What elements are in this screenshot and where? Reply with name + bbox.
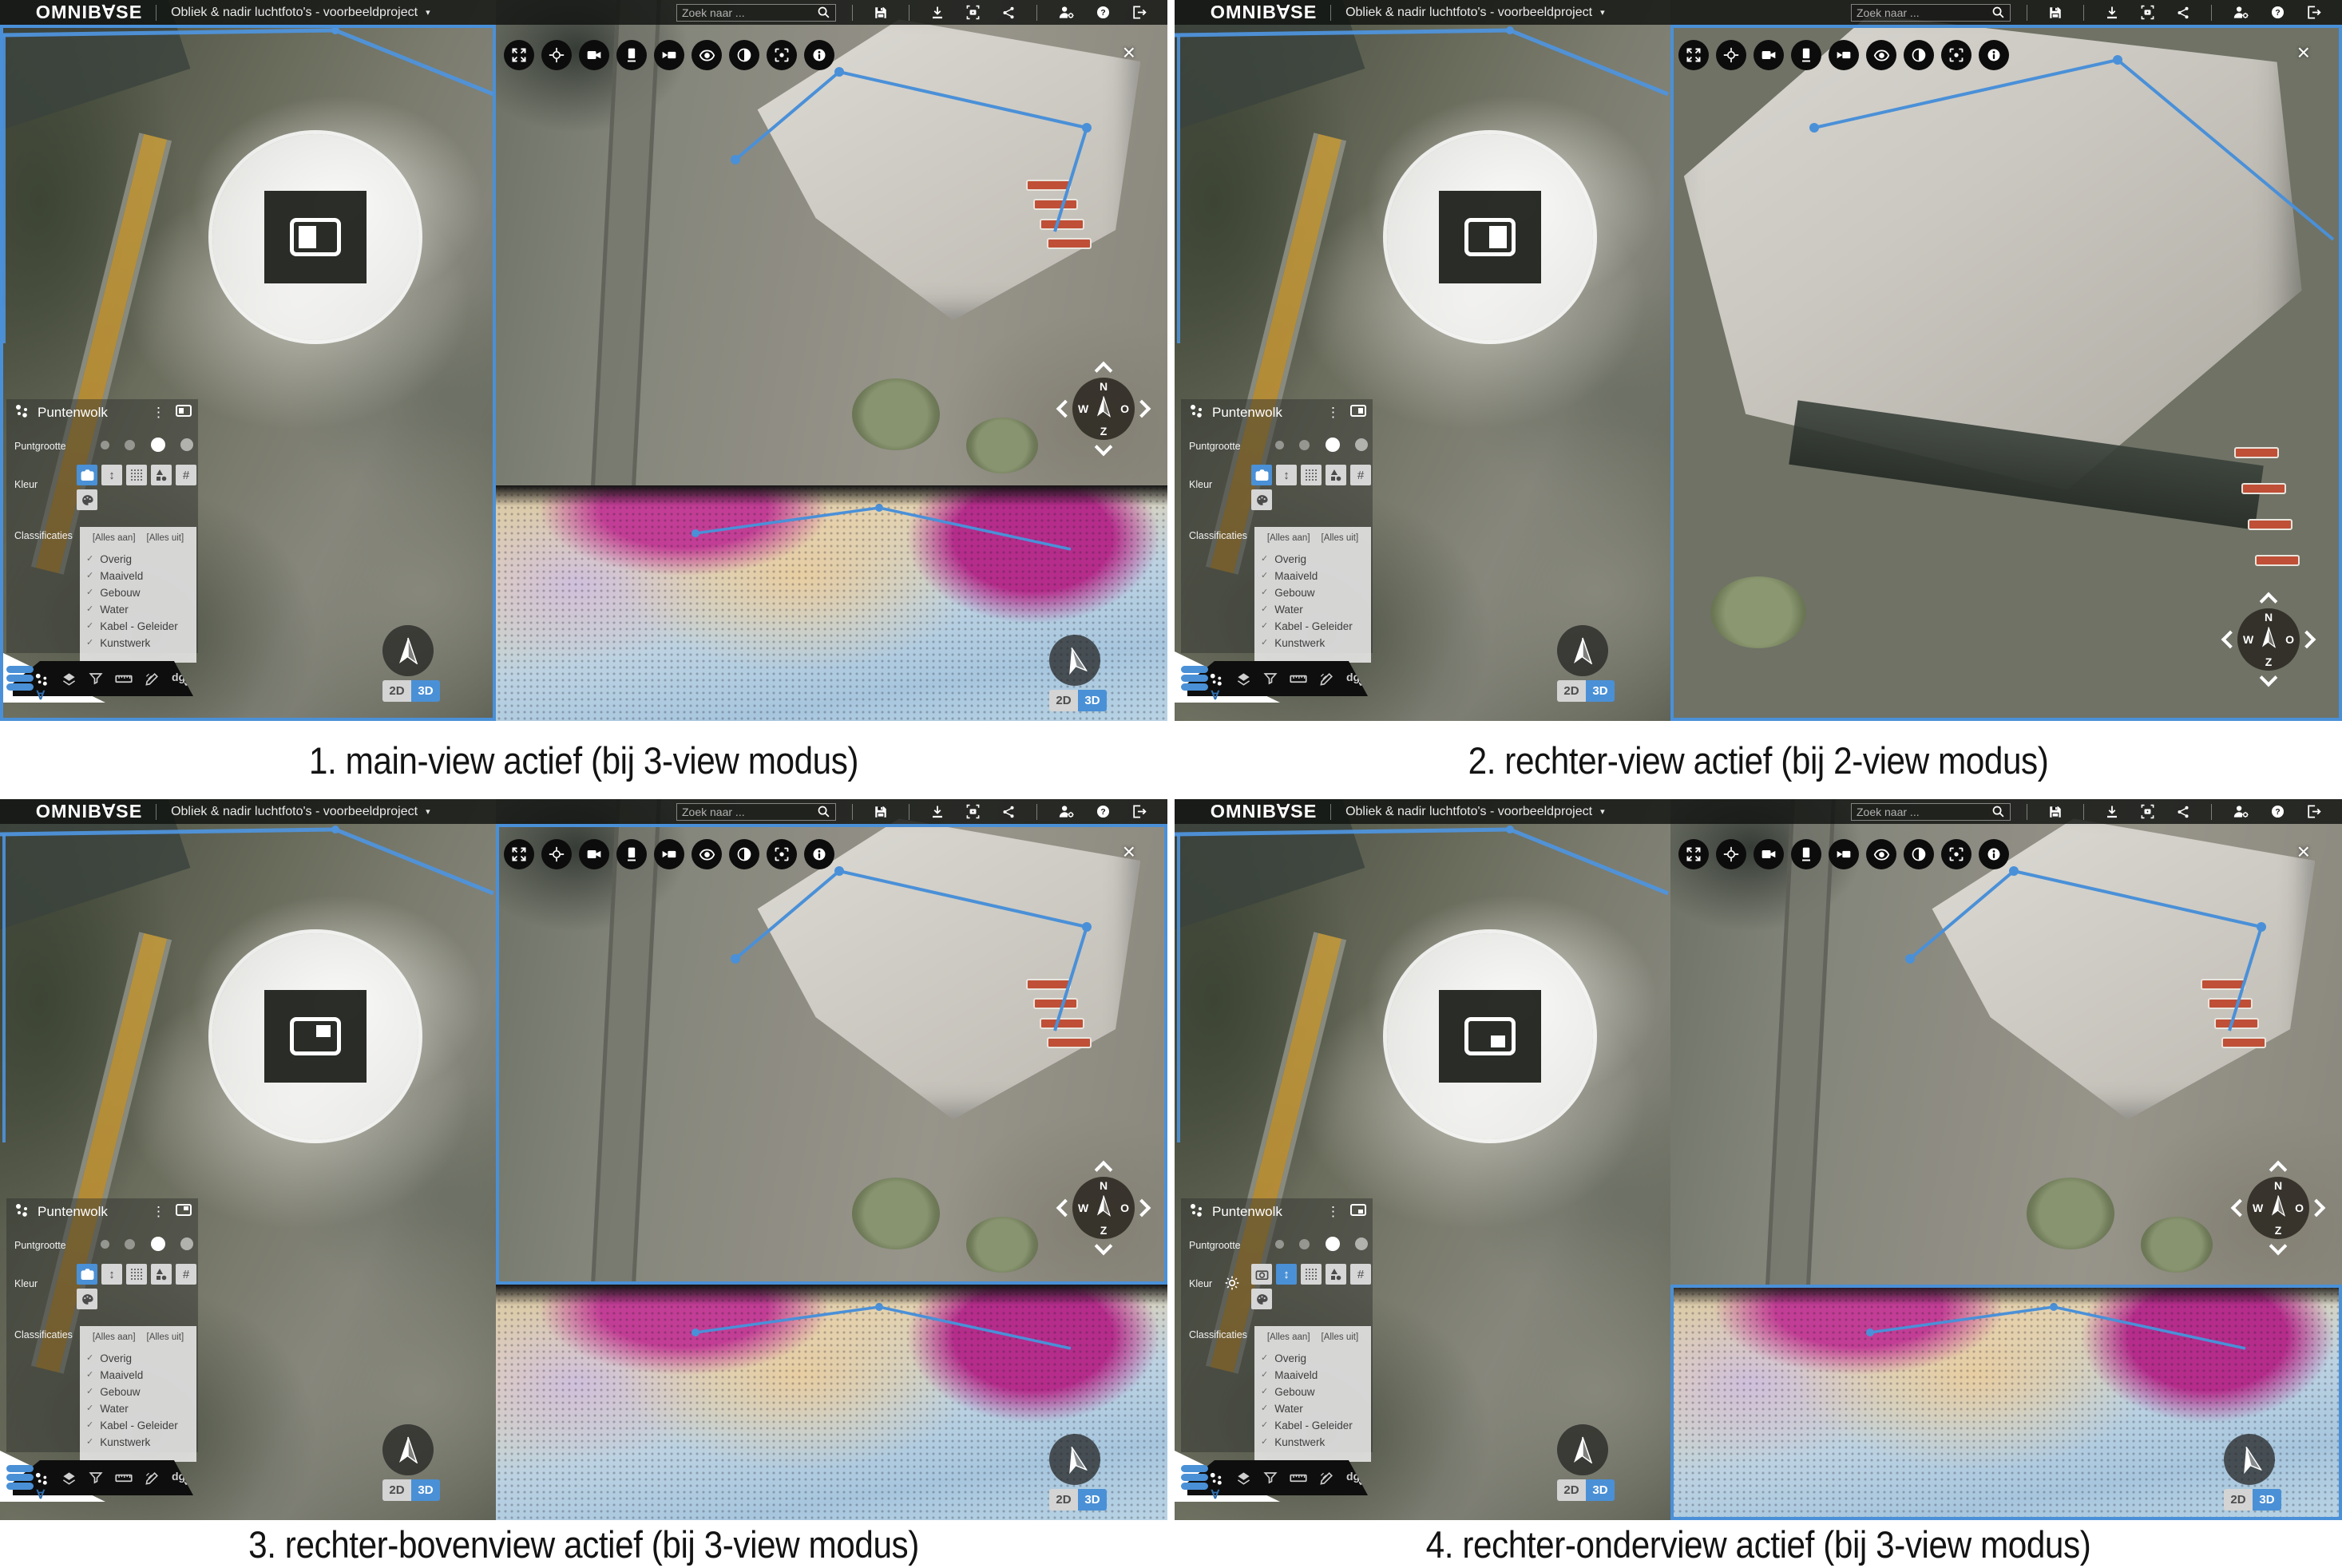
point-size-option-2[interactable] xyxy=(125,1239,135,1249)
download-icon[interactable] xyxy=(930,805,945,819)
database-logo[interactable]: ∀ xyxy=(1181,1465,1218,1499)
right-bottom-view[interactable]: 2D 3D xyxy=(496,485,1167,721)
point-size-option-3-selected[interactable] xyxy=(151,438,165,452)
chevron-down-icon[interactable]: ▾ xyxy=(426,7,430,18)
classification-item[interactable]: ✓Maaiveld xyxy=(86,1367,190,1384)
panel-menu-button[interactable]: ⋮ xyxy=(149,1204,168,1220)
panel-layout-icon[interactable] xyxy=(176,1204,192,1220)
right-bottom-view[interactable]: 2D 3D xyxy=(496,1285,1167,1520)
draw-icon[interactable] xyxy=(145,1471,160,1486)
right-top-view[interactable]: N W O Z xyxy=(496,799,1167,1285)
color-by-grid-button[interactable]: # xyxy=(1350,465,1371,485)
classification-item[interactable]: ✓Maaiveld xyxy=(1261,568,1365,584)
green-shape xyxy=(852,1178,940,1249)
point-size-option-1[interactable] xyxy=(1275,1240,1284,1249)
classification-item[interactable]: ✓Overig xyxy=(1261,1350,1365,1367)
classifications-box: [Alles aan] [Alles uit] ✓Overig ✓Maaivel… xyxy=(80,1326,196,1462)
point-size-label: Puntgrootte xyxy=(14,1240,66,1251)
close-view-button[interactable]: × xyxy=(1123,841,1135,863)
point-size-option-4[interactable] xyxy=(1355,438,1368,451)
road-shape xyxy=(591,0,661,485)
omnibase-logo[interactable]: OMNIB∀SE xyxy=(1211,801,1318,822)
compass-needle xyxy=(1096,1196,1111,1221)
layers-icon[interactable] xyxy=(61,671,77,687)
view-layout-indicator xyxy=(264,990,367,1083)
point-size-row: Puntgrootte xyxy=(1181,433,1373,465)
pointcloud-icon xyxy=(14,403,30,423)
project-boundary-line xyxy=(496,1285,1167,1520)
view-mode-switch: 2D 3D xyxy=(1557,1479,1615,1501)
info-icon[interactable] xyxy=(804,839,834,869)
eye-icon[interactable] xyxy=(692,839,722,869)
mode-3d-button[interactable]: 3D xyxy=(1586,680,1615,702)
all-off-link[interactable]: [Alles uit] xyxy=(1322,1332,1359,1342)
classification-item[interactable]: ✓Kabel - Geleider xyxy=(86,1417,190,1434)
panel-title: Puntenwolk xyxy=(1212,1204,1316,1220)
main-view[interactable]: Puntenwolk ⋮ Puntgrootte Kleur xyxy=(0,0,496,721)
chevron-right-icon[interactable] xyxy=(2298,631,2316,649)
chevron-down-icon[interactable] xyxy=(1095,1237,1113,1256)
classification-item[interactable]: ✓Maaiveld xyxy=(1261,1367,1365,1384)
classification-item[interactable]: ✓Water xyxy=(1261,601,1365,618)
expand-icon[interactable] xyxy=(504,839,534,869)
screenshot-icon[interactable] xyxy=(965,804,981,819)
share-icon[interactable] xyxy=(1001,6,1016,20)
compass-nwoz[interactable]: N W O Z xyxy=(2233,1163,2323,1253)
all-on-link[interactable]: [Alles aan] xyxy=(93,1332,136,1342)
mode-2d-button[interactable]: 2D xyxy=(382,1479,411,1501)
mode-3d-button[interactable]: 3D xyxy=(2253,1489,2281,1511)
palette-button[interactable] xyxy=(77,489,97,510)
puntenwolk-panel: Puntenwolk ⋮ Puntgrootte Kleur xyxy=(1181,1198,1373,1452)
divider xyxy=(1036,804,1037,820)
crosshair-icon[interactable] xyxy=(1716,40,1746,70)
help-icon[interactable]: ? xyxy=(2270,5,2285,20)
chevron-up-icon[interactable] xyxy=(2269,1161,2288,1179)
contrast-icon[interactable] xyxy=(729,40,759,70)
classification-item[interactable]: ✓Kabel - Geleider xyxy=(1261,1417,1365,1434)
draw-icon[interactable] xyxy=(145,671,160,687)
divider xyxy=(156,804,157,820)
right-bottom-view[interactable]: 2D 3D xyxy=(1670,1285,2342,1520)
divider xyxy=(909,5,909,21)
close-view-button[interactable]: × xyxy=(1123,42,1135,64)
share-icon[interactable] xyxy=(1001,805,1016,819)
check-icon: ✓ xyxy=(86,1434,93,1451)
screenshot-icon[interactable] xyxy=(965,5,981,20)
download-icon[interactable] xyxy=(930,6,945,20)
point-size-option-1[interactable] xyxy=(101,441,109,449)
logout-icon[interactable] xyxy=(1131,5,1147,20)
compass-east: O xyxy=(2285,633,2294,646)
chevron-up-icon[interactable] xyxy=(1095,1161,1113,1179)
save-icon[interactable] xyxy=(2048,6,2063,20)
compass-west: W xyxy=(2253,1202,2263,1214)
eye-icon[interactable] xyxy=(692,40,722,70)
search-box xyxy=(1851,4,2011,22)
info-icon[interactable] xyxy=(1979,839,2009,869)
view-mode-switch: 2D 3D xyxy=(1049,1489,1107,1511)
screen-icon[interactable] xyxy=(1791,839,1821,869)
crosshair-icon[interactable] xyxy=(541,40,572,70)
save-icon[interactable] xyxy=(874,805,888,819)
classification-item[interactable]: ✓Gebouw xyxy=(1261,584,1365,601)
color-by-classification-button[interactable] xyxy=(1326,1264,1346,1285)
database-logo[interactable]: ∀ xyxy=(1181,666,1218,699)
right-top-view[interactable]: N W O Z xyxy=(1670,799,2342,1285)
check-icon: ✓ xyxy=(86,1367,93,1384)
search-icon[interactable] xyxy=(817,6,830,19)
point-size-option-4[interactable] xyxy=(180,1237,193,1250)
filter-icon[interactable] xyxy=(89,671,103,686)
mode-2d-button[interactable]: 2D xyxy=(1049,1489,1078,1511)
color-by-photo-button[interactable] xyxy=(77,465,97,485)
save-icon[interactable] xyxy=(874,6,888,20)
divider xyxy=(2027,804,2027,820)
database-logo[interactable]: ∀ xyxy=(6,1465,43,1499)
chevron-down-icon[interactable]: ▾ xyxy=(1600,806,1605,817)
magnifier-circle xyxy=(1387,134,1593,340)
help-icon[interactable]: ? xyxy=(1096,804,1111,819)
compass-nwoz[interactable]: N W O Z xyxy=(2224,595,2313,684)
check-icon: ✓ xyxy=(1261,1400,1268,1417)
video-icon[interactable] xyxy=(1829,839,1859,869)
panel-menu-button[interactable]: ⋮ xyxy=(1323,1204,1343,1220)
download-icon[interactable] xyxy=(2105,805,2119,819)
chevron-right-icon[interactable] xyxy=(2308,1199,2326,1218)
color-by-photo-button[interactable] xyxy=(1251,465,1272,485)
chevron-down-icon[interactable] xyxy=(2269,1237,2288,1256)
point-size-option-4[interactable] xyxy=(180,438,193,451)
ruler-icon[interactable] xyxy=(115,1471,133,1485)
point-size-option-2[interactable] xyxy=(125,440,135,450)
point-size-option-2[interactable] xyxy=(1299,1239,1310,1249)
chevron-down-icon[interactable]: ▾ xyxy=(426,806,430,817)
all-on-link[interactable]: [Alles aan] xyxy=(93,533,136,543)
video-icon[interactable] xyxy=(654,839,684,869)
pointcloud-imagery xyxy=(496,1285,1167,1520)
video-icon[interactable] xyxy=(1829,40,1859,70)
classification-item[interactable]: ✓Kunstwerk xyxy=(1261,1434,1365,1451)
color-by-grid-button[interactable]: # xyxy=(1350,1264,1371,1285)
chevron-left-icon[interactable] xyxy=(1056,1199,1075,1218)
view-layout-indicator xyxy=(264,191,367,283)
center-focus-icon[interactable] xyxy=(767,839,797,869)
compass-nwoz[interactable]: N W O Z xyxy=(1059,364,1148,453)
search-icon[interactable] xyxy=(817,805,830,818)
classification-item[interactable]: ✓Kunstwerk xyxy=(86,635,190,651)
panel-menu-button[interactable]: ⋮ xyxy=(1323,405,1343,421)
search-box xyxy=(676,4,836,22)
logout-icon[interactable] xyxy=(2306,804,2321,819)
mode-2d-button[interactable]: 2D xyxy=(1557,1479,1586,1501)
all-on-link[interactable]: [Alles aan] xyxy=(1267,1332,1310,1342)
point-size-option-3-selected[interactable] xyxy=(151,1237,165,1251)
contrast-icon[interactable] xyxy=(1904,839,1934,869)
screenshot-icon[interactable] xyxy=(2140,5,2155,20)
search-input[interactable] xyxy=(1857,6,1991,19)
color-by-photo-button[interactable] xyxy=(77,1264,97,1285)
top-bar: OMNIB∀SE Obliek & nadir luchtfoto's - vo… xyxy=(1175,799,2342,824)
point-size-option-4[interactable] xyxy=(1355,1237,1368,1250)
color-by-classification-button[interactable] xyxy=(1326,465,1346,485)
classification-item[interactable]: ✓Water xyxy=(86,601,190,618)
search-input[interactable] xyxy=(1857,806,1991,818)
user-settings-icon[interactable] xyxy=(2233,804,2249,819)
color-by-intensity-button[interactable] xyxy=(126,465,147,485)
mode-3d-button[interactable]: 3D xyxy=(1586,1479,1615,1501)
classification-item[interactable]: ✓Gebouw xyxy=(86,1384,190,1400)
mode-3d-button[interactable]: 3D xyxy=(1078,1489,1107,1511)
color-by-height-button[interactable]: ↕ xyxy=(1276,465,1297,485)
classification-item[interactable]: ✓Maaiveld xyxy=(86,568,190,584)
color-settings-gear-icon[interactable] xyxy=(1224,1275,1240,1295)
chevron-up-icon[interactable] xyxy=(2260,592,2278,611)
eye-icon[interactable] xyxy=(1866,839,1896,869)
color-by-classification-button[interactable] xyxy=(151,465,172,485)
chevron-up-icon[interactable] xyxy=(1095,362,1113,380)
classification-item[interactable]: ✓Kunstwerk xyxy=(1261,635,1365,651)
all-off-link[interactable]: [Alles uit] xyxy=(147,1332,184,1342)
color-by-height-button[interactable]: ↕ xyxy=(1276,1264,1297,1285)
omnibase-logo[interactable]: OMNIB∀SE xyxy=(36,801,143,822)
compass-needle xyxy=(2261,628,2276,652)
green-shape xyxy=(2027,1178,2114,1249)
main-view[interactable]: Puntenwolk ⋮ Puntgrootte Kleur xyxy=(1175,799,1670,1520)
info-icon[interactable] xyxy=(1979,40,2009,70)
classification-item[interactable]: ✓Kunstwerk xyxy=(86,1434,190,1451)
compass[interactable] xyxy=(382,625,434,676)
mode-2d-button[interactable]: 2D xyxy=(2224,1489,2253,1511)
compass[interactable] xyxy=(1557,1424,1608,1475)
panel-layout-icon[interactable] xyxy=(1350,405,1366,421)
right-top-view[interactable]: N W O Z xyxy=(1670,0,2342,721)
classification-item[interactable]: ✓Water xyxy=(1261,1400,1365,1417)
compass[interactable] xyxy=(1557,625,1608,676)
omnibase-logo[interactable]: OMNIB∀SE xyxy=(1211,2,1318,23)
videocam-icon[interactable] xyxy=(579,839,609,869)
chevron-down-icon[interactable]: ▾ xyxy=(1600,7,1605,18)
ruler-icon[interactable] xyxy=(115,671,133,686)
logout-icon[interactable] xyxy=(1131,804,1147,819)
expand-icon[interactable] xyxy=(504,40,534,70)
compass[interactable] xyxy=(382,1424,434,1475)
close-view-button[interactable]: × xyxy=(2297,841,2310,863)
point-size-option-3-selected[interactable] xyxy=(1326,438,1340,452)
project-title[interactable]: Obliek & nadir luchtfoto's - voorbeeldpr… xyxy=(1345,805,1592,819)
check-icon: ✓ xyxy=(1261,1367,1268,1384)
palette-button[interactable] xyxy=(1251,1289,1272,1309)
chevron-down-icon[interactable] xyxy=(2260,669,2278,687)
compass-north: N xyxy=(2265,611,2273,624)
active-view-layout-icon xyxy=(1464,218,1516,256)
filter-icon[interactable] xyxy=(89,1471,103,1485)
contrast-icon[interactable] xyxy=(1904,40,1934,70)
videocam-icon[interactable] xyxy=(1754,40,1784,70)
all-on-link[interactable]: [Alles aan] xyxy=(1267,533,1310,543)
compass-east: O xyxy=(1120,1202,1129,1214)
screenshot-figure: Puntenwolk ⋮ Puntgrootte Kleur xyxy=(1175,0,2342,799)
check-icon: ✓ xyxy=(1261,551,1268,568)
magnifier-circle xyxy=(1387,933,1593,1139)
check-icon: ✓ xyxy=(1261,1417,1268,1434)
compass-west: W xyxy=(1078,1202,1088,1214)
right-views: N W O Z xyxy=(1670,0,2342,721)
user-settings-icon[interactable] xyxy=(2233,5,2249,20)
chevron-left-icon[interactable] xyxy=(2231,1199,2249,1218)
filter-icon[interactable] xyxy=(1263,1471,1278,1485)
help-icon[interactable]: ? xyxy=(1096,5,1111,20)
center-focus-icon[interactable] xyxy=(1941,40,1971,70)
classification-item[interactable]: ✓Gebouw xyxy=(1261,1384,1365,1400)
all-off-link[interactable]: [Alles uit] xyxy=(147,533,184,543)
app-screenshot: Puntenwolk ⋮ Puntgrootte Kleur xyxy=(0,799,1167,1520)
color-by-height-button[interactable]: ↕ xyxy=(101,1264,122,1285)
chevron-left-icon[interactable] xyxy=(2221,631,2240,649)
point-size-option-3-selected[interactable] xyxy=(1326,1237,1340,1251)
point-size-label: Puntgrootte xyxy=(14,441,66,452)
filter-icon[interactable] xyxy=(1263,671,1278,686)
screenshot-icon[interactable] xyxy=(2140,804,2155,819)
draw-icon[interactable] xyxy=(1319,671,1334,687)
ruler-icon[interactable] xyxy=(1290,1471,1307,1485)
eye-icon[interactable] xyxy=(1866,40,1896,70)
logout-icon[interactable] xyxy=(2306,5,2321,20)
search-input[interactable] xyxy=(682,6,817,19)
expand-icon[interactable] xyxy=(1678,839,1709,869)
compass-needle xyxy=(1096,397,1111,422)
mode-2d-button[interactable]: 2D xyxy=(382,680,411,702)
mode-2d-button[interactable]: 2D xyxy=(1049,690,1078,711)
panel-menu-button[interactable]: ⋮ xyxy=(149,405,168,421)
screen-icon[interactable] xyxy=(616,40,647,70)
help-icon[interactable]: ? xyxy=(2270,804,2285,819)
check-icon: ✓ xyxy=(1261,1384,1268,1400)
project-title[interactable]: Obliek & nadir luchtfoto's - voorbeeldpr… xyxy=(1345,6,1592,20)
chevron-right-icon[interactable] xyxy=(1133,400,1151,418)
color-by-grid-button[interactable]: # xyxy=(176,465,196,485)
omnibase-logo[interactable]: OMNIB∀SE xyxy=(36,2,143,23)
screenshot-figure: Puntenwolk ⋮ Puntgrootte Kleur xyxy=(1175,799,2342,1568)
classification-item[interactable]: ✓Kabel - Geleider xyxy=(1261,618,1365,635)
panel-layout-icon[interactable] xyxy=(176,405,192,421)
palette-button[interactable] xyxy=(1251,489,1272,510)
videocam-icon[interactable] xyxy=(579,40,609,70)
crosshair-icon[interactable] xyxy=(541,839,572,869)
close-view-button[interactable]: × xyxy=(2297,42,2310,64)
mode-3d-button[interactable]: 3D xyxy=(411,680,440,702)
screen-icon[interactable] xyxy=(616,839,647,869)
color-by-intensity-button[interactable] xyxy=(1301,465,1322,485)
figure-caption: 3. rechter-bovenview actief (bij 3-view … xyxy=(58,1520,1109,1568)
view-mode-switch: 2D 3D xyxy=(2224,1489,2281,1511)
project-boundary-line xyxy=(1670,1285,2342,1520)
videocam-icon[interactable] xyxy=(1754,839,1784,869)
color-by-photo-button[interactable] xyxy=(1251,1264,1272,1285)
share-icon[interactable] xyxy=(2176,805,2190,819)
check-icon: ✓ xyxy=(86,1400,93,1417)
center-focus-icon[interactable] xyxy=(767,40,797,70)
project-title[interactable]: Obliek & nadir luchtfoto's - voorbeeldpr… xyxy=(171,805,418,819)
compass-north: N xyxy=(1100,380,1108,393)
color-label: Kleur xyxy=(14,1278,38,1289)
ruler-icon[interactable] xyxy=(1290,671,1307,686)
layers-icon[interactable] xyxy=(1236,1471,1251,1486)
point-size-option-2[interactable] xyxy=(1299,440,1310,450)
search-icon[interactable] xyxy=(1991,805,2005,818)
contrast-icon[interactable] xyxy=(729,839,759,869)
color-label: Kleur xyxy=(1189,479,1212,490)
divider xyxy=(156,5,157,21)
screen-icon[interactable] xyxy=(1791,40,1821,70)
draw-icon[interactable] xyxy=(1319,1471,1334,1486)
download-icon[interactable] xyxy=(2105,6,2119,20)
user-settings-icon[interactable] xyxy=(1058,5,1075,20)
user-settings-icon[interactable] xyxy=(1058,804,1075,819)
video-icon[interactable] xyxy=(654,40,684,70)
point-size-option-1[interactable] xyxy=(1275,441,1284,449)
expand-icon[interactable] xyxy=(1678,40,1709,70)
compass-nwoz[interactable]: N W O Z xyxy=(1059,1163,1148,1253)
panel-layout-icon[interactable] xyxy=(1350,1204,1366,1220)
color-by-height-button[interactable]: ↕ xyxy=(101,465,122,485)
crosshair-icon[interactable] xyxy=(1716,839,1746,869)
puntenwolk-panel: Puntenwolk ⋮ Puntgrootte Kleur xyxy=(6,1198,198,1452)
mode-3d-button[interactable]: 3D xyxy=(1078,690,1107,711)
search-icon[interactable] xyxy=(1991,6,2005,19)
app-screenshot: Puntenwolk ⋮ Puntgrootte Kleur xyxy=(1175,799,2342,1520)
all-off-link[interactable]: [Alles uit] xyxy=(1322,533,1359,543)
layers-icon[interactable] xyxy=(61,1471,77,1486)
database-logo[interactable]: ∀ xyxy=(6,666,43,699)
classification-item[interactable]: ✓Overig xyxy=(86,1350,190,1367)
view-toolbar xyxy=(1678,839,2009,869)
color-mode-row: Kleur ↕ xyxy=(1181,1264,1373,1318)
info-icon[interactable] xyxy=(804,40,834,70)
magnifier-circle xyxy=(212,933,418,1139)
classification-item[interactable]: ✓Water xyxy=(86,1400,190,1417)
center-focus-icon[interactable] xyxy=(1941,839,1971,869)
mode-3d-button[interactable]: 3D xyxy=(411,1479,440,1501)
classification-item[interactable]: ✓Kabel - Geleider xyxy=(86,618,190,635)
classification-item[interactable]: ✓Gebouw xyxy=(86,584,190,601)
chevron-right-icon[interactable] xyxy=(1133,1199,1151,1218)
classification-item[interactable]: ✓Overig xyxy=(1261,551,1365,568)
main-view[interactable]: Puntenwolk ⋮ Puntgrootte Kleur xyxy=(1175,0,1670,721)
main-view[interactable]: Puntenwolk ⋮ Puntgrootte Kleur xyxy=(0,799,496,1520)
point-size-option-1[interactable] xyxy=(101,1240,109,1249)
palette-button[interactable] xyxy=(77,1289,97,1309)
save-icon[interactable] xyxy=(2048,805,2063,819)
color-by-intensity-button[interactable] xyxy=(1301,1264,1322,1285)
search-input[interactable] xyxy=(682,806,817,818)
color-by-grid-button[interactable]: # xyxy=(176,1264,196,1285)
color-by-classification-button[interactable] xyxy=(151,1264,172,1285)
color-by-intensity-button[interactable] xyxy=(126,1264,147,1285)
divider xyxy=(1036,5,1037,21)
share-icon[interactable] xyxy=(2176,6,2190,20)
chevron-down-icon[interactable] xyxy=(1095,438,1113,457)
compass-south: Z xyxy=(2265,655,2273,668)
classification-item[interactable]: ✓Overig xyxy=(86,551,190,568)
layers-icon[interactable] xyxy=(1236,671,1251,687)
chevron-left-icon[interactable] xyxy=(1056,400,1075,418)
project-title[interactable]: Obliek & nadir luchtfoto's - voorbeeldpr… xyxy=(171,6,418,20)
right-top-view[interactable]: N W O Z xyxy=(496,0,1167,485)
road-shape xyxy=(591,799,661,1285)
mode-2d-button[interactable]: 2D xyxy=(1557,680,1586,702)
view-mode-switch: 2D 3D xyxy=(382,1479,440,1501)
